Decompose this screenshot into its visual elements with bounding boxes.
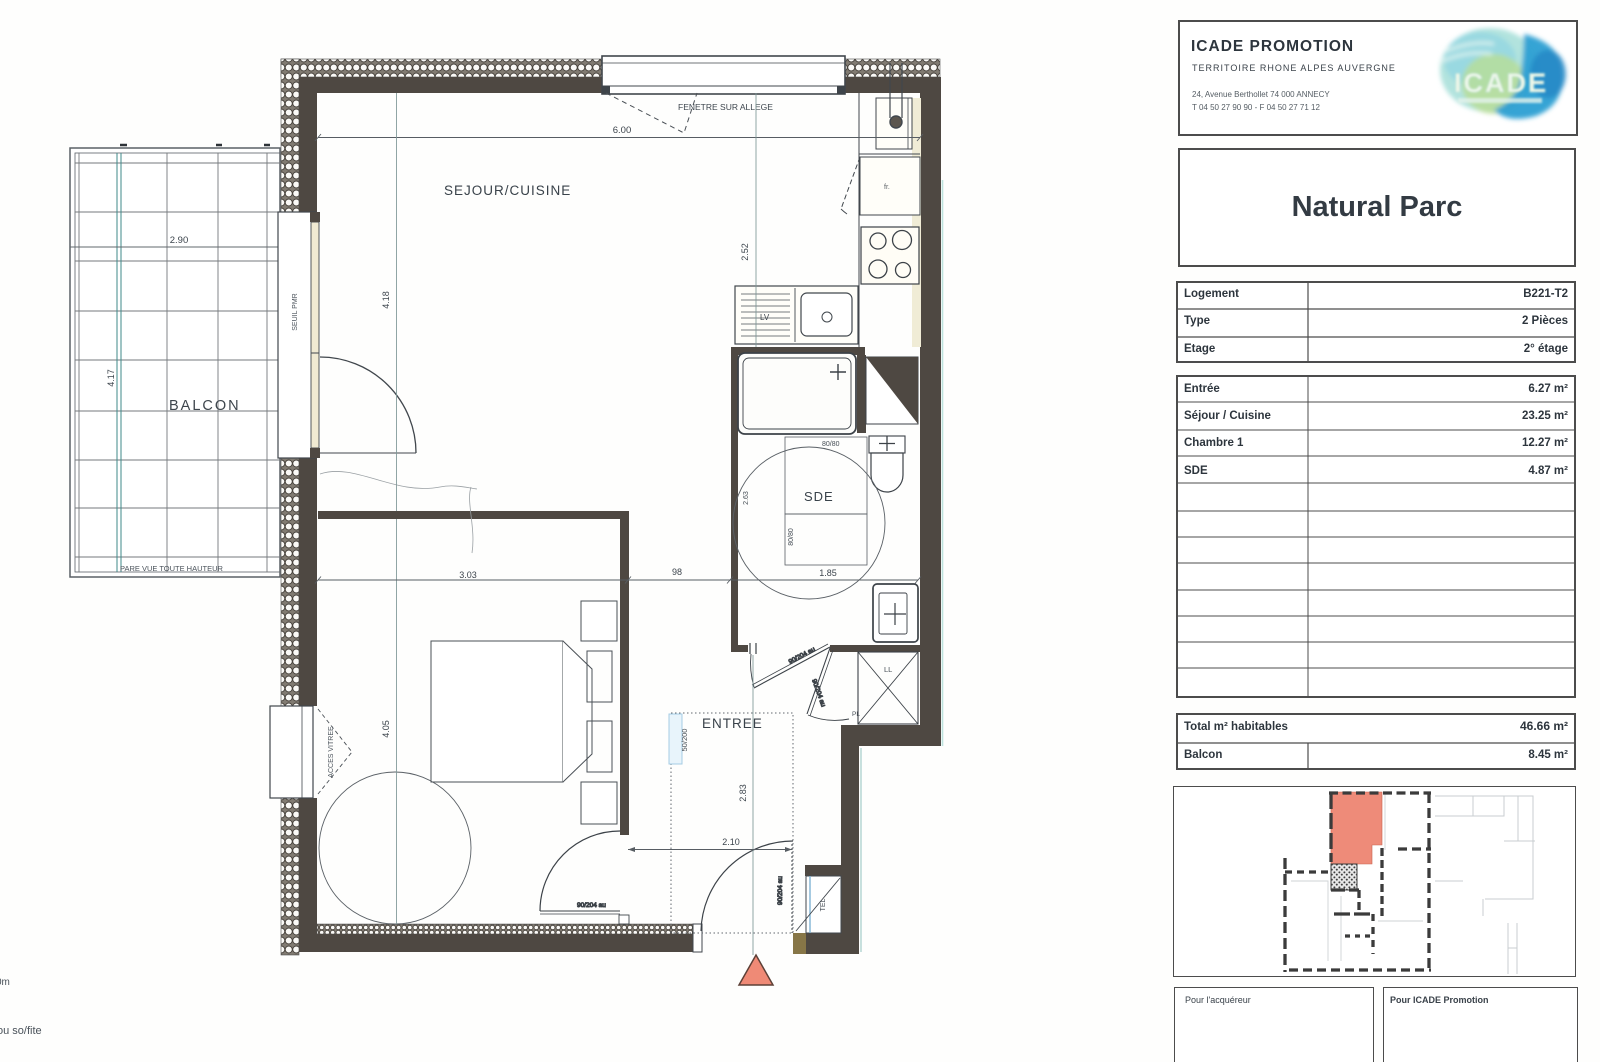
svg-text:2.90: 2.90 — [170, 235, 189, 246]
svg-text:SDE: SDE — [804, 489, 834, 504]
svg-text:ACCES VITREE: ACCES VITREE — [328, 726, 335, 778]
svg-text:2.83: 2.83 — [738, 784, 748, 802]
svg-text:TEL: TEL — [820, 898, 827, 911]
svg-text:PARE VUE TOUTE HAUTEUR: PARE VUE TOUTE HAUTEUR — [120, 564, 224, 573]
svg-text:FENETRE SUR ALLEGE: FENETRE SUR ALLEGE — [678, 102, 773, 112]
svg-text:fr.: fr. — [884, 184, 890, 191]
svg-text:4.17: 4.17 — [106, 369, 116, 387]
svg-text:1.85: 1.85 — [819, 568, 837, 578]
svg-text:98: 98 — [672, 567, 682, 577]
svg-text:LL: LL — [884, 665, 892, 674]
svg-text:6.00: 6.00 — [613, 125, 632, 136]
svg-text:2.10: 2.10 — [722, 837, 740, 847]
svg-text:LV: LV — [760, 313, 770, 322]
svg-text:2.52: 2.52 — [740, 243, 750, 261]
svg-text:80/80: 80/80 — [822, 441, 840, 448]
svg-text:SEJOUR/CUISINE: SEJOUR/CUISINE — [444, 183, 571, 198]
svg-text:3.03: 3.03 — [459, 570, 477, 580]
svg-text:BALCON: BALCON — [169, 398, 241, 414]
svg-text:50/200: 50/200 — [680, 729, 689, 752]
svg-text:90/204 au: 90/204 au — [810, 678, 827, 708]
svg-text:4.18: 4.18 — [381, 291, 391, 309]
svg-text:90/204 au: 90/204 au — [777, 876, 784, 905]
svg-text:90/204 au: 90/204 au — [788, 646, 817, 666]
svg-text:2.63: 2.63 — [743, 491, 750, 505]
svg-text:PL: PL — [852, 711, 860, 718]
svg-text:4.05: 4.05 — [381, 720, 391, 738]
svg-text:ENTREE: ENTREE — [702, 716, 763, 731]
svg-text:ICADE: ICADE — [1454, 68, 1548, 98]
svg-text:90/204 au: 90/204 au — [577, 902, 606, 909]
svg-text:80/80: 80/80 — [788, 528, 795, 546]
svg-text:SEUIL PMR: SEUIL PMR — [292, 293, 299, 330]
